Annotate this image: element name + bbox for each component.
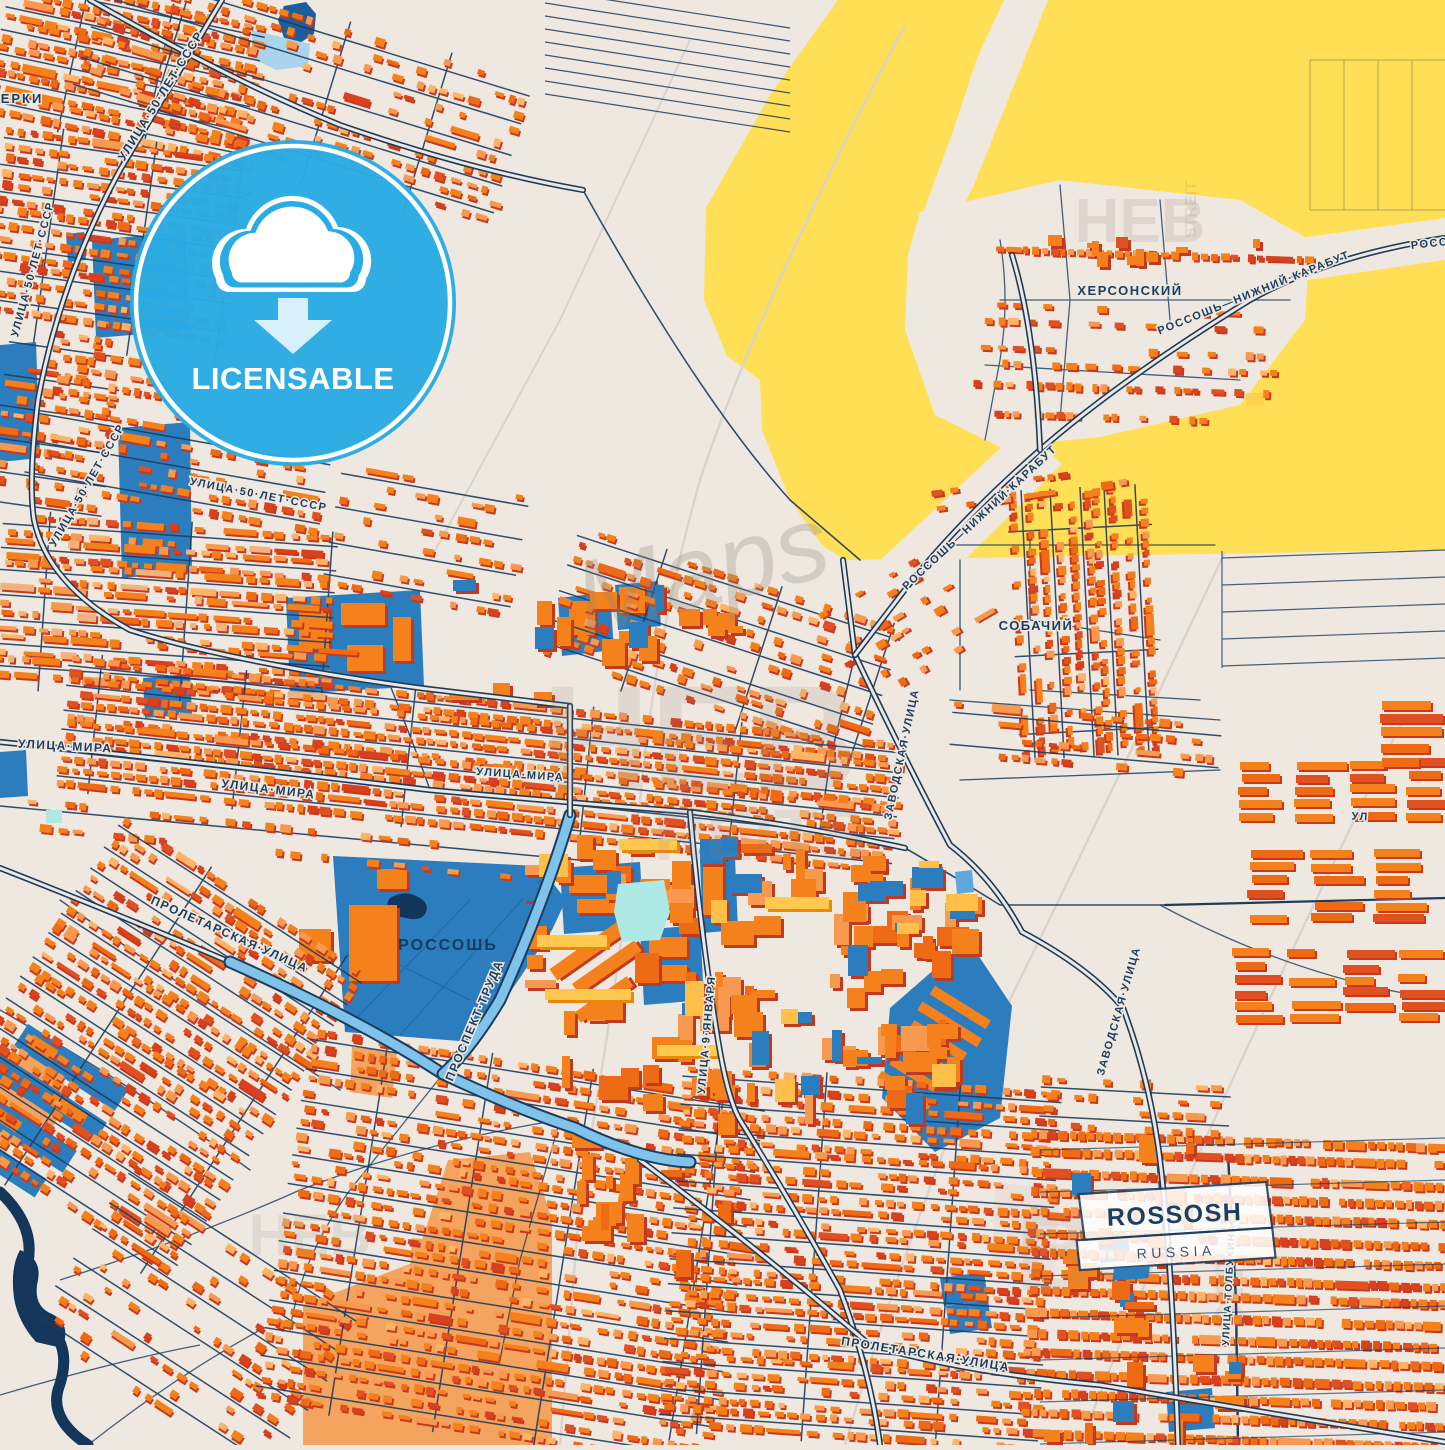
- svg-text:HEB: HEB: [249, 1203, 371, 1268]
- svg-text:LICENSABLE: LICENSABLE: [191, 361, 394, 396]
- svg-text:СОБАЧИЙ: СОБАЧИЙ: [999, 618, 1074, 633]
- svg-text:ХЕРСОНСКИЙ: ХЕРСОНСКИЙ: [1077, 283, 1182, 298]
- svg-text:ЕРКИ: ЕРКИ: [1, 91, 44, 106]
- svg-text:РОССОШЬ: РОССОШЬ: [398, 937, 498, 954]
- svg-text:УЛ: УЛ: [1351, 811, 1369, 824]
- svg-text:ROSSOSH: ROSSOSH: [1106, 1198, 1243, 1232]
- svg-text:REITS: REITS: [654, 796, 866, 876]
- svg-text:STREIT: STREIT: [1183, 181, 1200, 238]
